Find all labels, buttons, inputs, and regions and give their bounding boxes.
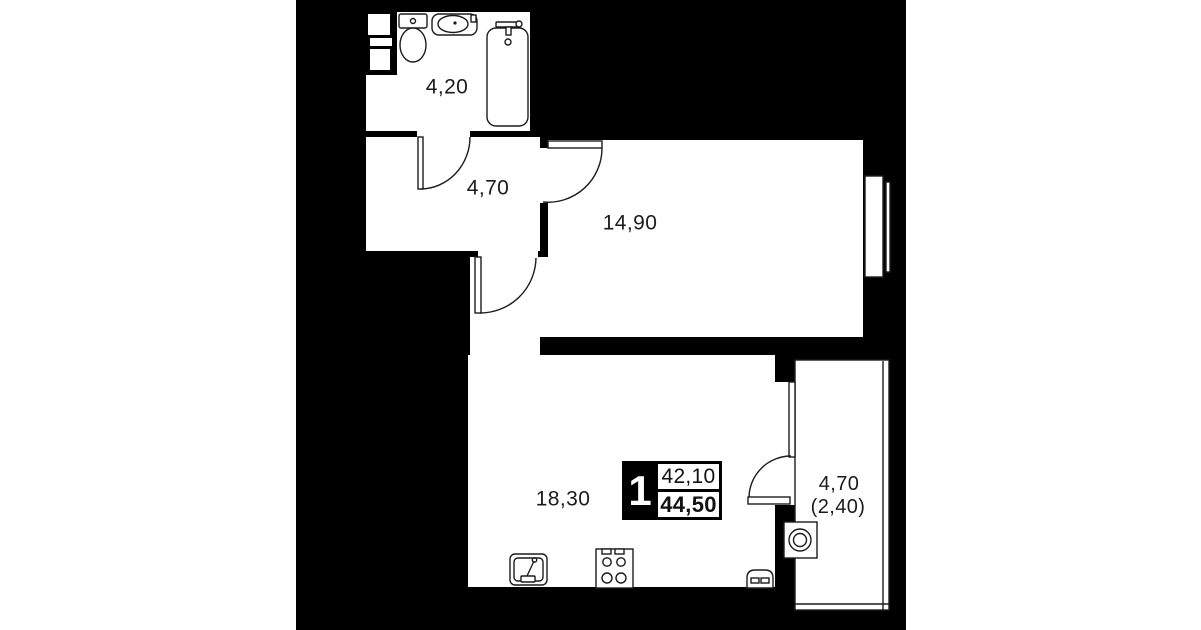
kitchen-sink-icon bbox=[510, 554, 547, 585]
total-area-value: 44,50 bbox=[658, 492, 719, 517]
bathroom-area-label: 4,20 bbox=[426, 77, 468, 98]
living-area-value: 42,10 bbox=[658, 464, 719, 492]
bathtub-icon bbox=[487, 21, 528, 126]
washing-machine-icon bbox=[784, 522, 817, 558]
hallway-floor bbox=[366, 137, 540, 251]
living-room-door-leaf bbox=[548, 141, 602, 148]
balcony-window-pane bbox=[789, 382, 795, 457]
floor-plan-graphic bbox=[0, 0, 1201, 630]
window-icon bbox=[865, 176, 890, 277]
legend-areas: 42,10 44,50 bbox=[655, 464, 719, 517]
kitchen-area-label: 18,30 bbox=[536, 489, 591, 510]
bathroom-floor-ext bbox=[366, 75, 399, 131]
kitchen-doorway bbox=[478, 251, 538, 257]
floor-plan-page: 4,20 4,70 14,90 18,30 4,70 (2,40) 1 42,1… bbox=[0, 0, 1201, 630]
living-room-area-label: 14,90 bbox=[603, 213, 658, 234]
bathroom-sink-icon bbox=[432, 14, 477, 35]
balcony-reduced-area-label: (2,40) bbox=[811, 497, 866, 517]
living-room-floor bbox=[548, 140, 863, 337]
living-room-doorway bbox=[540, 148, 548, 203]
bathroom-doorway bbox=[417, 131, 470, 137]
bathroom-door-leaf bbox=[418, 137, 423, 189]
toilet-icon bbox=[399, 14, 427, 62]
hallway-area-label: 4,70 bbox=[467, 178, 509, 199]
balcony-area-label: 4,70 bbox=[819, 474, 860, 494]
stove-icon bbox=[596, 549, 633, 588]
oven-icon bbox=[747, 570, 773, 588]
apartment-legend: 1 42,10 44,50 bbox=[622, 461, 722, 520]
balcony-door-leaf bbox=[748, 497, 790, 504]
kitchen-door-leaf bbox=[475, 257, 481, 313]
rooms-count-badge: 1 bbox=[625, 464, 655, 517]
wall-gap bbox=[540, 257, 548, 337]
